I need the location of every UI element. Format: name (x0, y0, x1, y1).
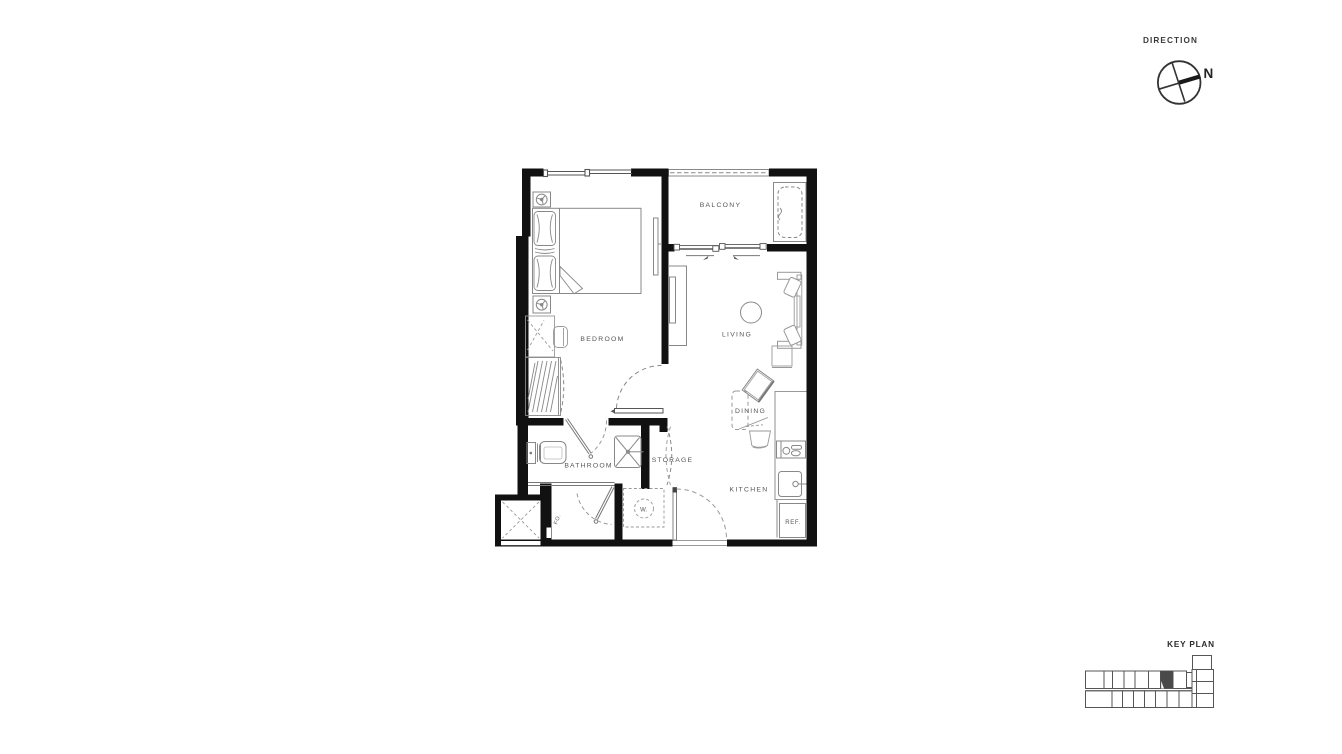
svg-text:BATHROOM: BATHROOM (564, 463, 612, 470)
svg-text:REF.: REF. (785, 520, 800, 526)
svg-text:N: N (1204, 66, 1214, 81)
svg-text:DINING: DINING (735, 408, 766, 415)
svg-text:W.: W. (640, 508, 648, 514)
svg-text:DIRECTION: DIRECTION (1143, 36, 1198, 45)
svg-text:KITCHEN: KITCHEN (730, 487, 769, 494)
svg-text:LIVING: LIVING (722, 332, 752, 339)
svg-text:BEDROOM: BEDROOM (580, 336, 624, 343)
svg-text:KEY PLAN: KEY PLAN (1167, 640, 1215, 649)
svg-text:BALCONY: BALCONY (700, 202, 742, 209)
svg-text:STORAGE: STORAGE (652, 457, 694, 464)
